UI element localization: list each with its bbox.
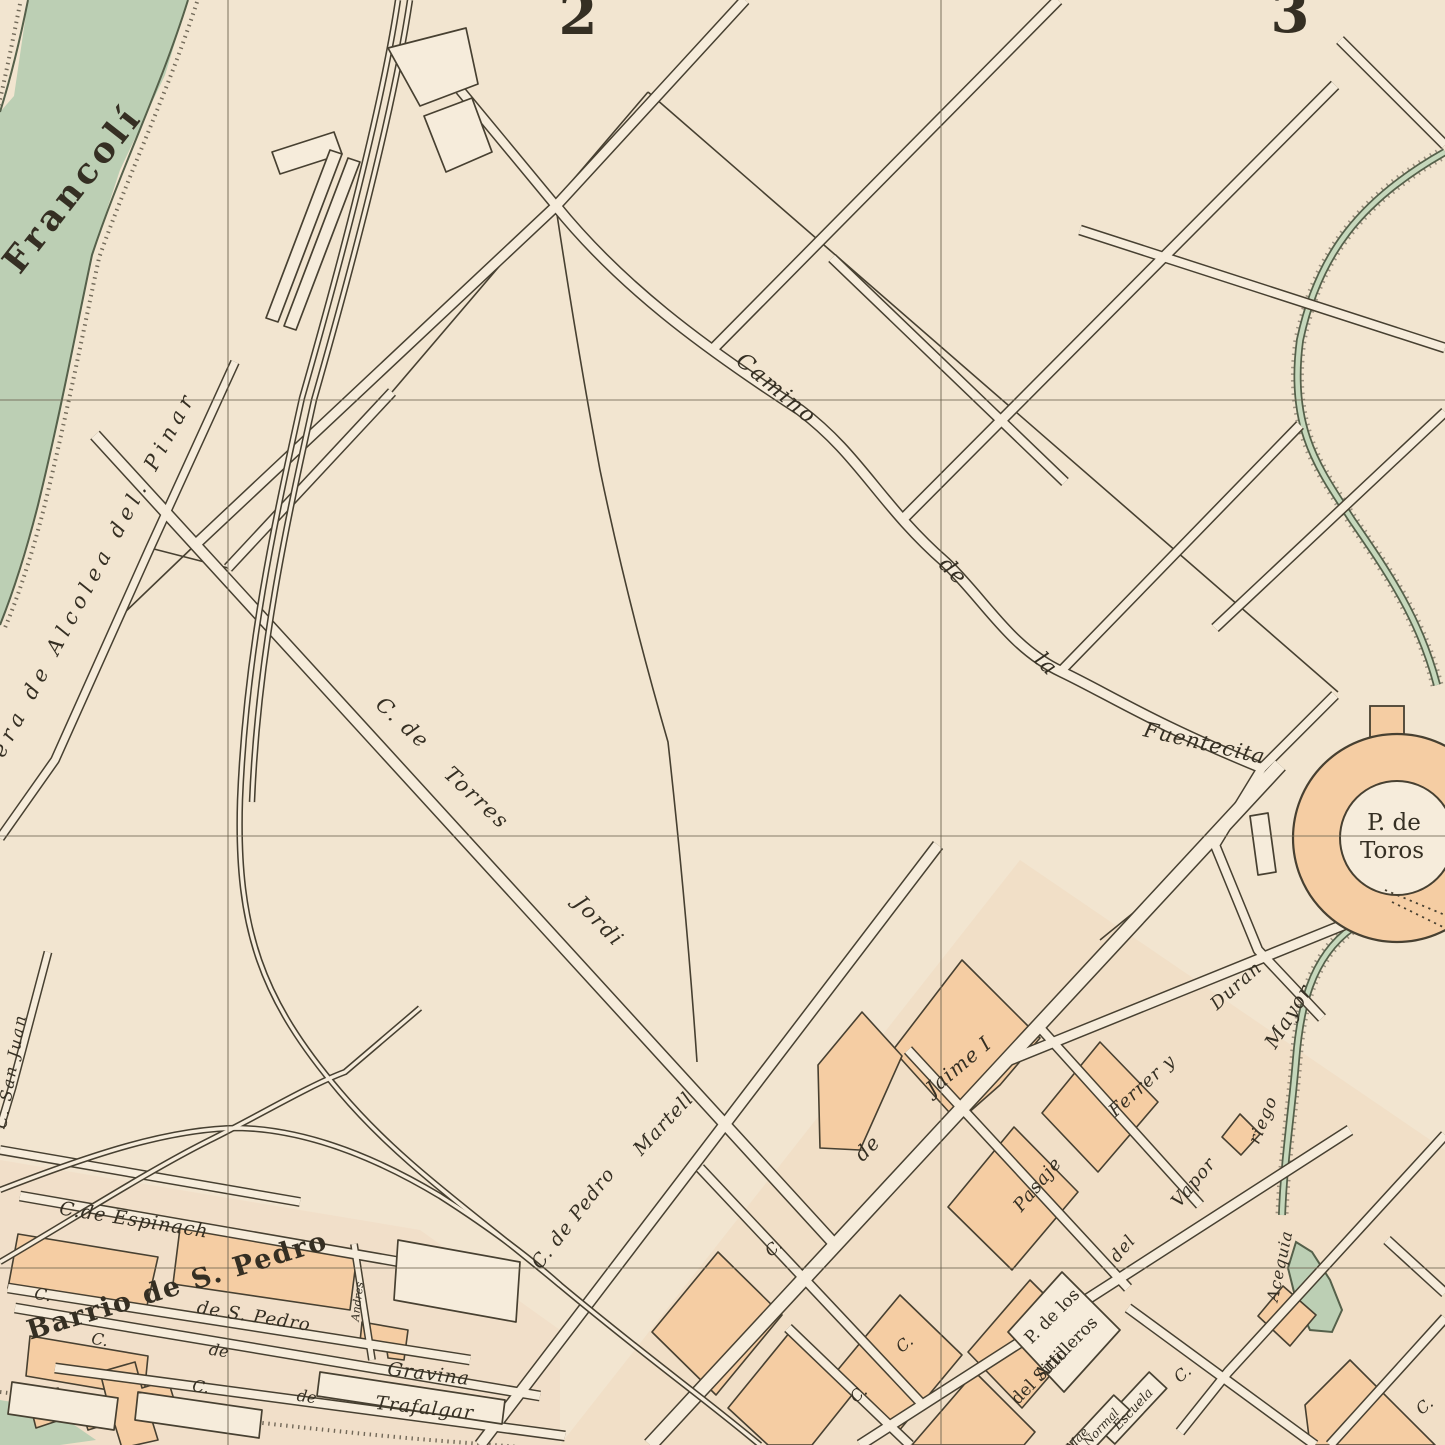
grid-number-2: 2: [559, 0, 598, 48]
map-canvas: Francolí23era de Alcolea del. PinarCamin…: [0, 0, 1445, 1445]
trafalgar-label-de: de: [296, 1386, 318, 1408]
plaza-toros-label-line1: P. de: [1367, 810, 1421, 836]
grid-number-3: 3: [1271, 0, 1310, 46]
street-c-label-2: C.: [90, 1329, 110, 1350]
street-c-label-3: C.: [191, 1376, 210, 1397]
gravina-label-de: de: [208, 1340, 230, 1362]
plaza-toros-label-line2: Toros: [1360, 838, 1424, 864]
street-c-label-1: C.: [33, 1284, 53, 1305]
city-map: Francolí23era de Alcolea del. PinarCamin…: [0, 0, 1445, 1445]
